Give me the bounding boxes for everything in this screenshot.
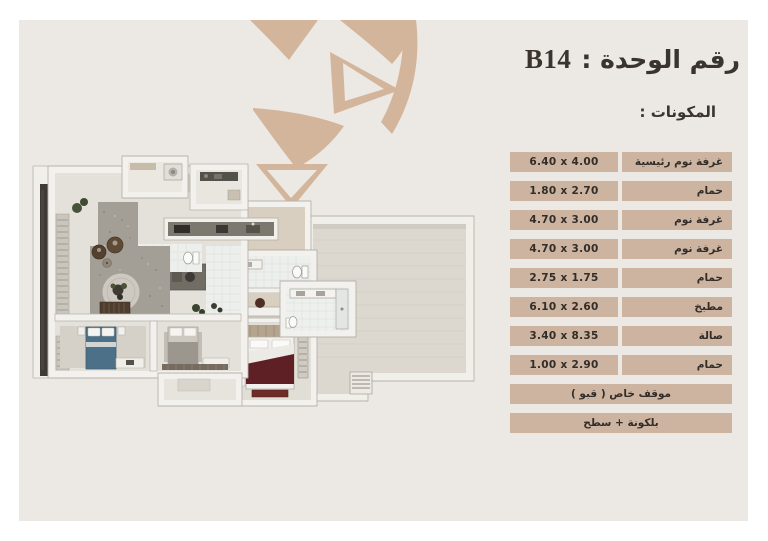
page-title: رقم الوحدة : B14	[525, 44, 740, 75]
room-name-cell: حمام	[622, 355, 732, 375]
unit-number: B14	[525, 44, 572, 75]
table-row-full: بلكونة + سطح	[510, 413, 732, 433]
components-heading: المكونات :	[639, 103, 716, 121]
room-name-cell: صالة	[622, 326, 732, 346]
table-row: مطبخ 6.10 x 2.60	[510, 297, 732, 317]
dimension-cell: 1.80 x 2.70	[510, 181, 618, 201]
dimension-cell: 6.40 x 4.00	[510, 152, 618, 172]
room-name-cell: غرفة نوم رئيسية	[622, 152, 732, 172]
table-row: غرفة نوم 4.70 x 3.00	[510, 210, 732, 230]
dimension-cell: 2.75 x 1.75	[510, 268, 618, 288]
room-name-cell: حمام	[622, 181, 732, 201]
table-row: حمام 1.00 x 2.90	[510, 355, 732, 375]
room-name-cell: غرفة نوم	[622, 210, 732, 230]
room-name-cell: غرفة نوم	[622, 239, 732, 259]
room-name-cell: حمام	[622, 268, 732, 288]
table-row: غرفة نوم رئيسية 6.40 x 4.00	[510, 152, 732, 172]
room-name-cell: مطبخ	[622, 297, 732, 317]
decorative-motif	[250, 20, 417, 208]
table-row: حمام 2.75 x 1.75	[510, 268, 732, 288]
table-row: غرفة نوم 4.70 x 3.00	[510, 239, 732, 259]
table-row: صالة 3.40 x 8.35	[510, 326, 732, 346]
balcony	[158, 373, 242, 406]
dimension-cell: 4.70 x 3.00	[510, 239, 618, 259]
table-row: حمام 1.80 x 2.70	[510, 181, 732, 201]
dimension-cell: 6.10 x 2.60	[510, 297, 618, 317]
laundry-nook	[122, 156, 188, 198]
components-table: غرفة نوم رئيسية 6.40 x 4.00 حمام 1.80 x …	[510, 152, 732, 442]
dimension-cell: 1.00 x 2.90	[510, 355, 618, 375]
unit-title-label: رقم الوحدة :	[581, 45, 740, 74]
page-background: رقم الوحدة : B14 المكونات : غرفة نوم رئي…	[0, 0, 768, 541]
master-bathroom	[280, 281, 356, 337]
table-row-full: موقف خاص ( قبو )	[510, 384, 732, 404]
dimension-cell: 3.40 x 8.35	[510, 326, 618, 346]
dimension-cell: 4.70 x 3.00	[510, 210, 618, 230]
